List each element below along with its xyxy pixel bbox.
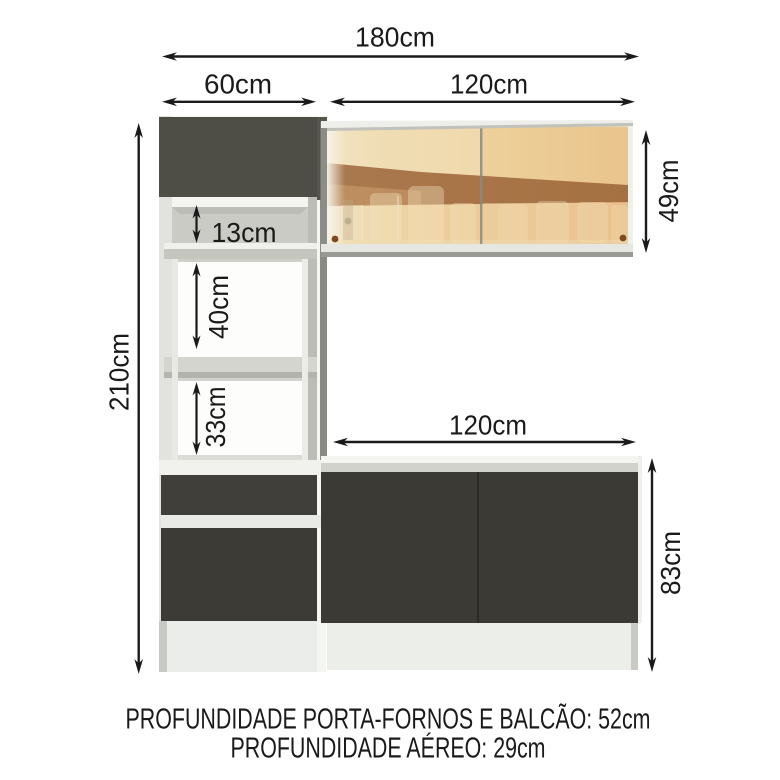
svg-text:180cm: 180cm [355,22,435,53]
svg-text:83cm: 83cm [655,531,686,595]
svg-text:PROFUNDIDADE PORTA-FORNOS E BA: PROFUNDIDADE PORTA-FORNOS E BALCÃO: 52cm [126,702,651,736]
svg-text:40cm: 40cm [203,275,234,339]
svg-text:33cm: 33cm [200,387,231,448]
svg-text:60cm: 60cm [204,69,272,100]
svg-text:13cm: 13cm [212,217,277,248]
svg-text:PROFUNDIDADE AÉREO: 29cm: PROFUNDIDADE AÉREO: 29cm [231,732,546,765]
svg-text:120cm: 120cm [449,410,527,441]
svg-text:49cm: 49cm [653,160,684,223]
svg-text:210cm: 210cm [104,333,135,411]
svg-text:120cm: 120cm [450,69,528,100]
